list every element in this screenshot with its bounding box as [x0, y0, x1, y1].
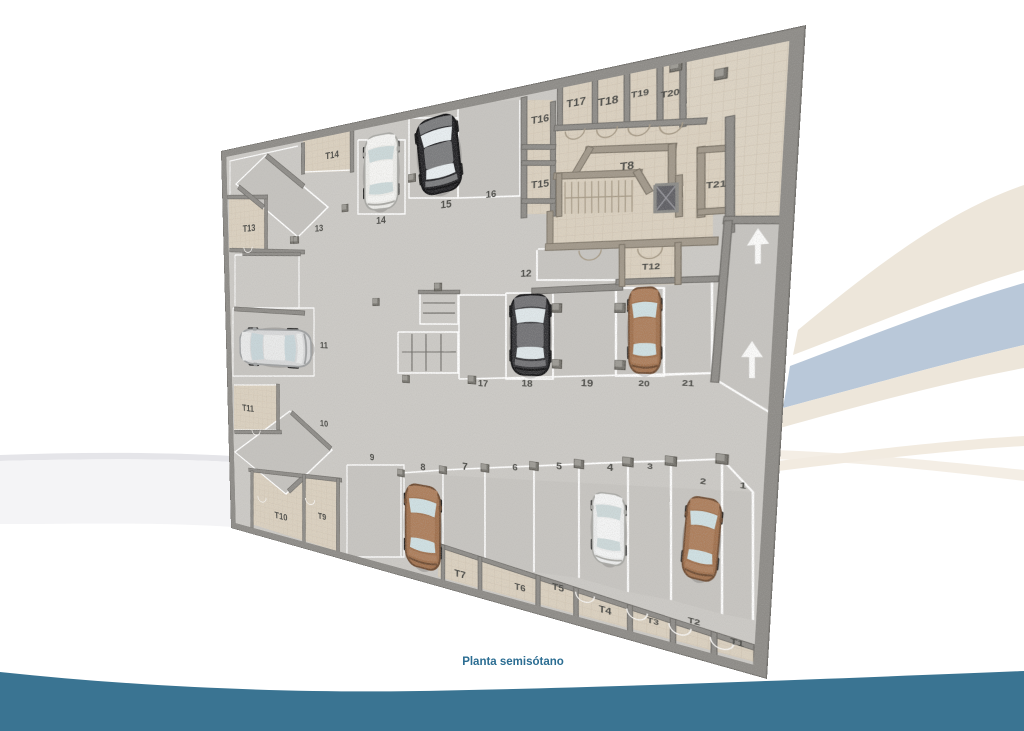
svg-text:Planta semisótano: Planta semisótano: [462, 656, 564, 668]
svg-text:12: 12: [520, 270, 532, 280]
svg-text:21: 21: [682, 379, 695, 391]
svg-text:20: 20: [638, 379, 650, 390]
svg-text:16: 16: [486, 190, 498, 201]
svg-text:19: 19: [581, 380, 595, 391]
svg-text:T11: T11: [242, 403, 255, 415]
svg-text:14: 14: [376, 216, 386, 227]
svg-text:17: 17: [478, 380, 489, 390]
svg-text:T8: T8: [620, 161, 636, 174]
svg-text:7: 7: [462, 462, 468, 473]
svg-text:15: 15: [440, 200, 451, 212]
svg-text:3: 3: [647, 462, 654, 473]
svg-text:10: 10: [320, 420, 329, 430]
svg-text:T9: T9: [318, 512, 327, 522]
svg-text:2: 2: [700, 477, 707, 489]
svg-text:11: 11: [320, 342, 328, 351]
svg-text:18: 18: [521, 380, 533, 390]
svg-text:T13: T13: [243, 222, 256, 234]
svg-text:T21: T21: [706, 179, 727, 193]
svg-text:T12: T12: [642, 262, 661, 273]
svg-text:1: 1: [739, 481, 747, 493]
svg-text:9: 9: [370, 454, 375, 464]
svg-text:8: 8: [420, 463, 425, 473]
svg-text:13: 13: [315, 224, 324, 234]
